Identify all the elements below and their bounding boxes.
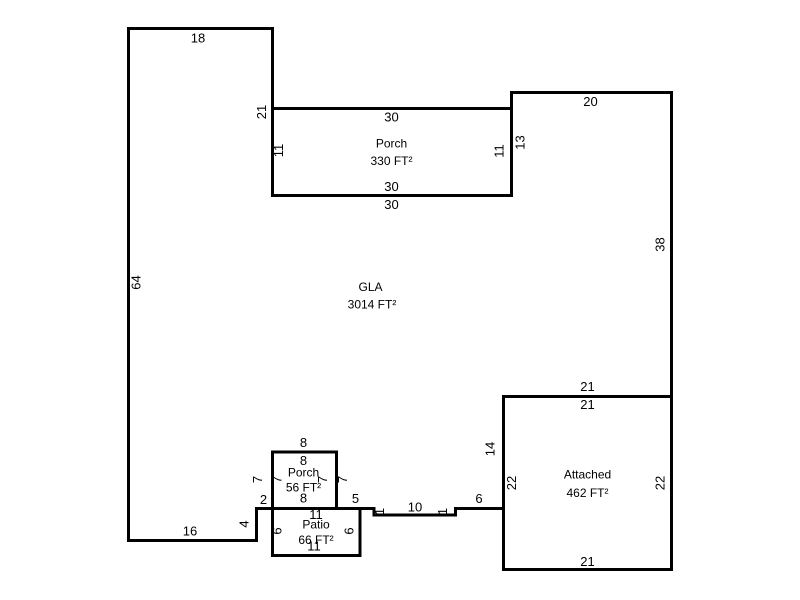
svg-text:22: 22 — [653, 476, 668, 490]
svg-text:38: 38 — [653, 237, 668, 251]
svg-text:4: 4 — [237, 520, 252, 527]
svg-text:7: 7 — [270, 476, 285, 483]
svg-text:30: 30 — [384, 110, 398, 125]
svg-text:13: 13 — [513, 135, 528, 149]
svg-text:6: 6 — [475, 491, 482, 506]
svg-text:22: 22 — [504, 476, 519, 490]
svg-text:21: 21 — [580, 379, 594, 394]
svg-text:21: 21 — [254, 105, 269, 119]
svg-text:Attached: Attached — [564, 468, 611, 482]
svg-text:GLA: GLA — [358, 280, 382, 294]
svg-text:11: 11 — [271, 144, 286, 158]
svg-text:3014 FT²: 3014 FT² — [348, 298, 397, 312]
svg-text:18: 18 — [191, 31, 205, 46]
svg-text:7: 7 — [315, 476, 330, 483]
svg-text:330 FT²: 330 FT² — [370, 154, 412, 168]
svg-text:64: 64 — [129, 275, 144, 289]
svg-text:21: 21 — [580, 554, 594, 569]
svg-text:8: 8 — [300, 491, 307, 506]
svg-text:7: 7 — [335, 476, 350, 483]
svg-text:21: 21 — [580, 397, 594, 412]
svg-text:462 FT²: 462 FT² — [566, 486, 608, 500]
svg-text:16: 16 — [183, 524, 197, 539]
svg-text:30: 30 — [384, 197, 398, 212]
svg-text:20: 20 — [583, 94, 597, 109]
svg-text:1: 1 — [435, 508, 450, 515]
svg-text:Patio: Patio — [302, 518, 330, 532]
svg-text:8: 8 — [300, 435, 307, 450]
svg-text:30: 30 — [384, 179, 398, 194]
svg-text:6: 6 — [270, 527, 285, 534]
svg-text:11: 11 — [307, 539, 321, 554]
svg-text:14: 14 — [483, 442, 498, 456]
svg-text:11: 11 — [492, 144, 507, 158]
svg-text:10: 10 — [408, 500, 422, 515]
svg-text:7: 7 — [250, 476, 265, 483]
svg-text:5: 5 — [352, 491, 359, 506]
svg-text:1: 1 — [372, 508, 387, 515]
svg-text:6: 6 — [342, 527, 357, 534]
svg-text:Porch: Porch — [376, 137, 407, 151]
svg-text:2: 2 — [260, 492, 267, 507]
